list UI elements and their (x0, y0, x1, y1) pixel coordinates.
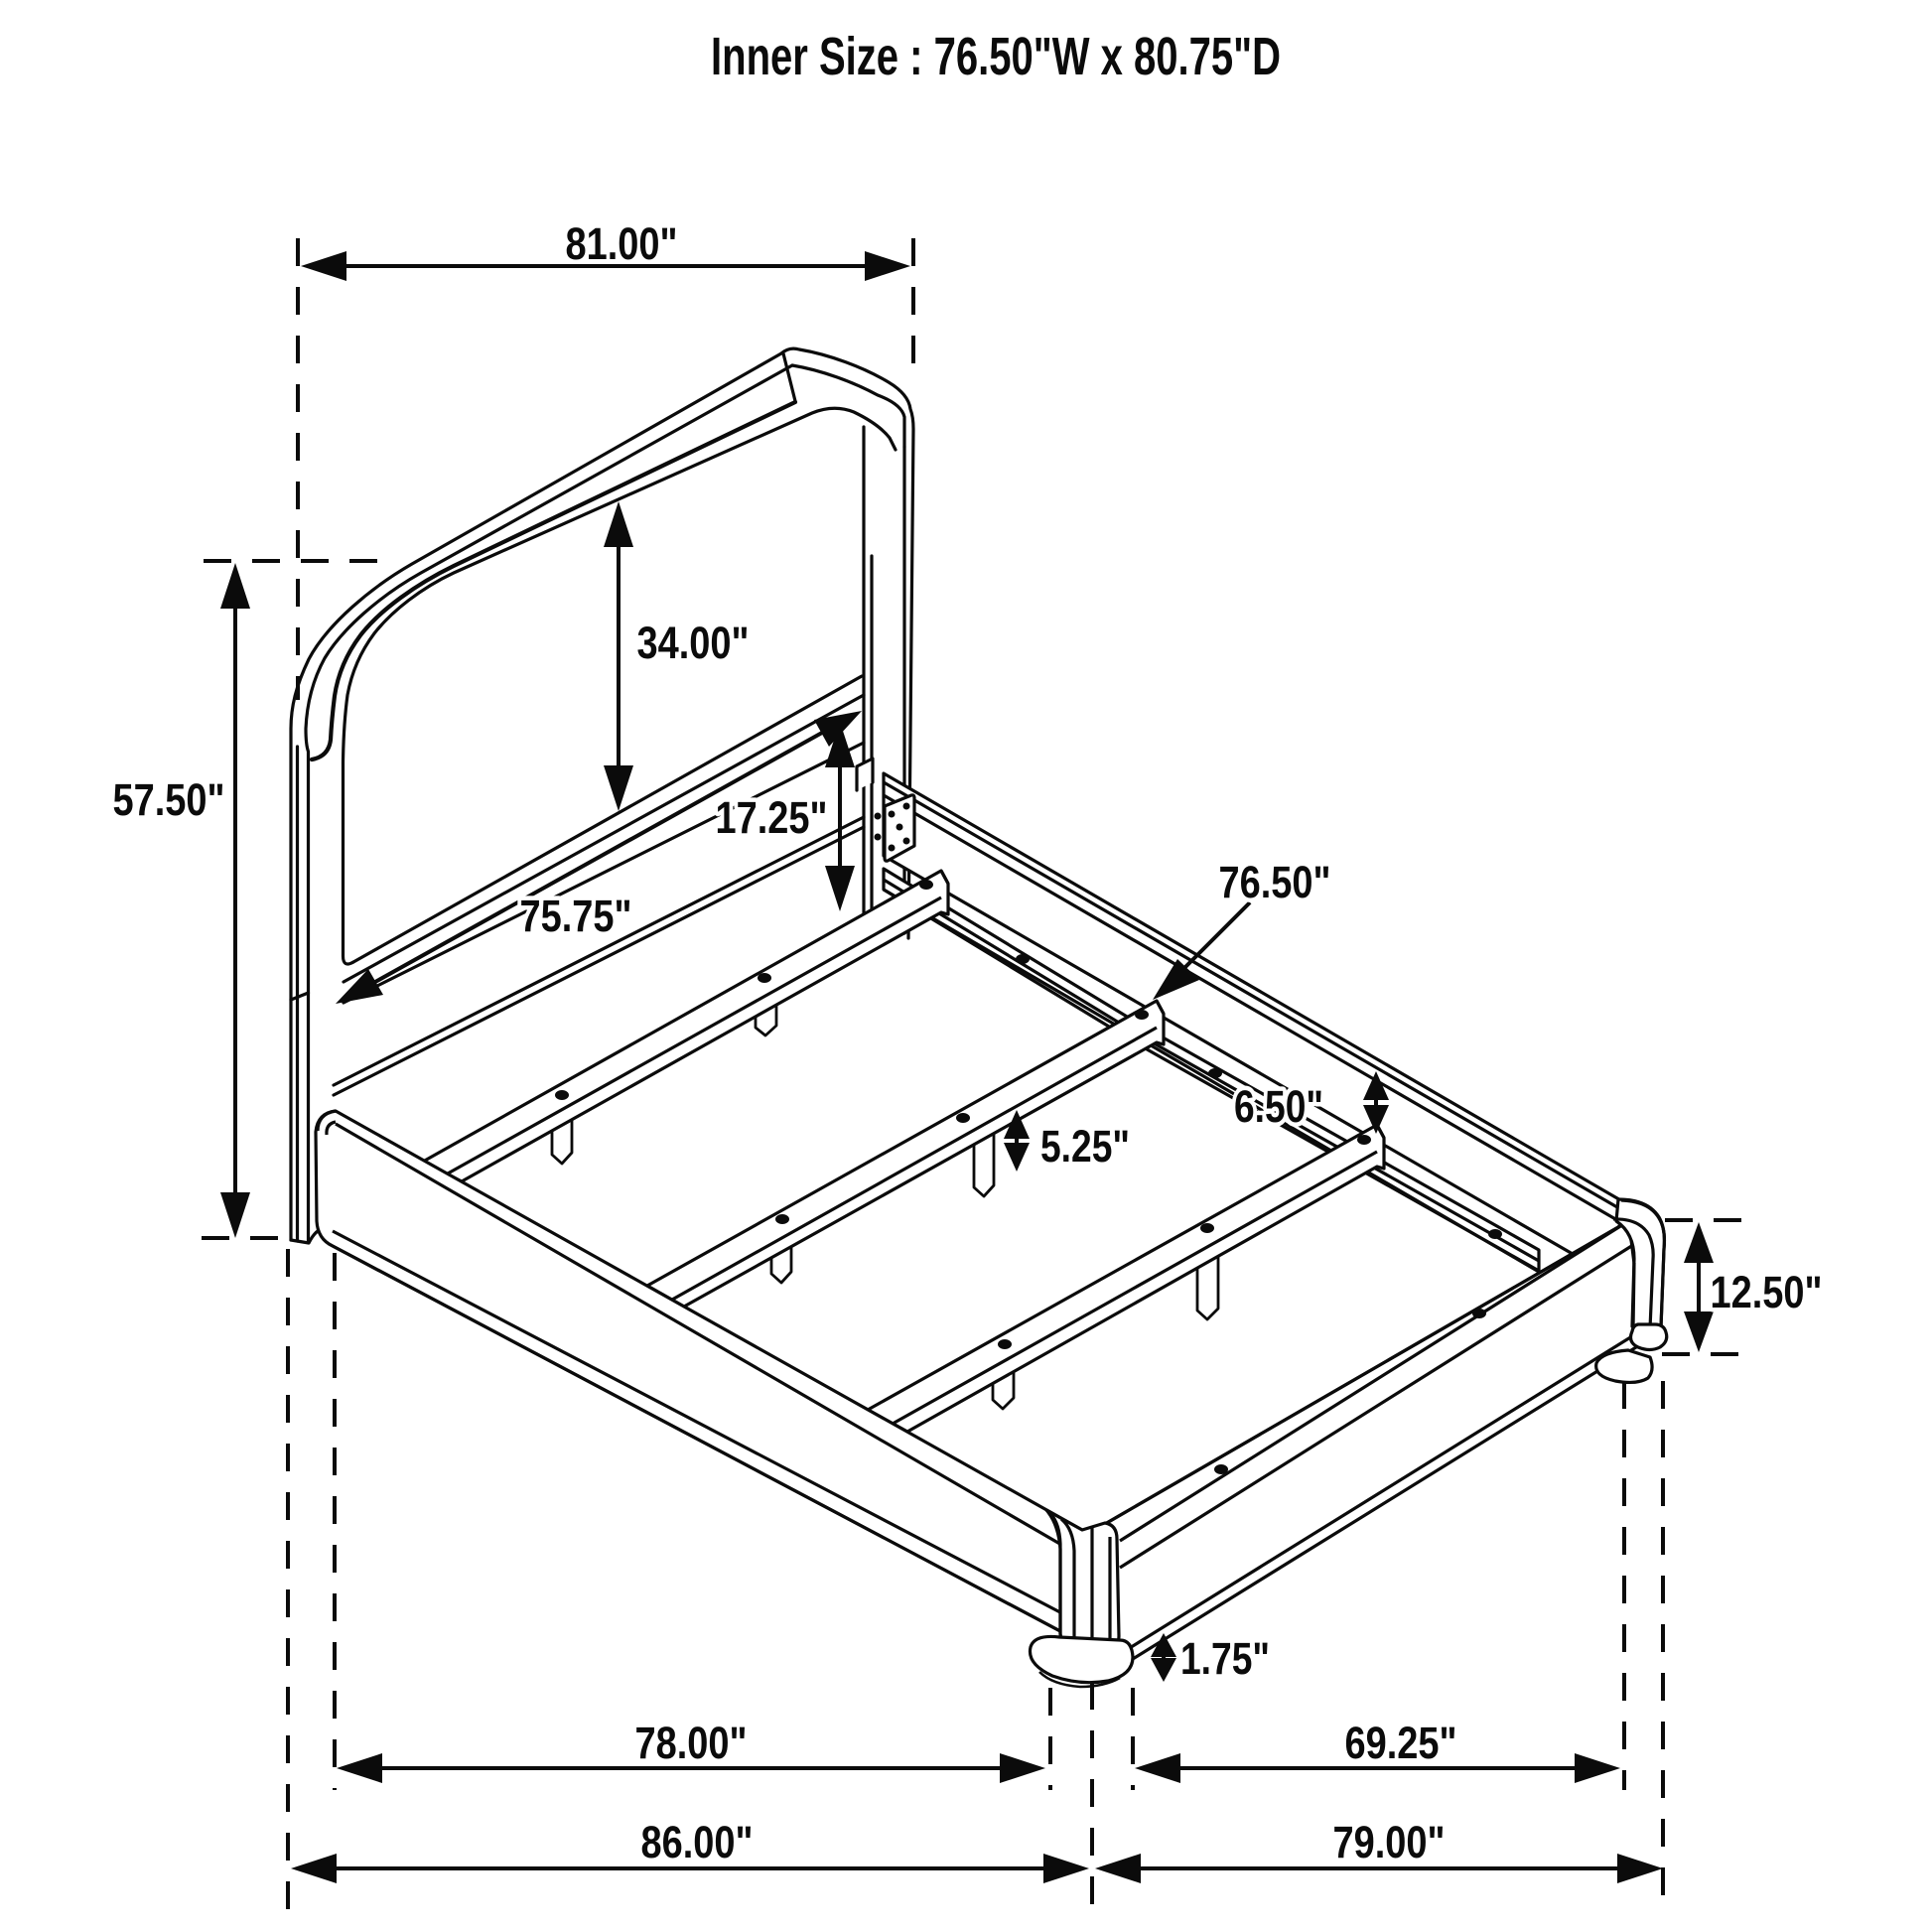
svg-text:57.50": 57.50" (113, 774, 225, 825)
svg-text:6.50": 6.50" (1234, 1081, 1323, 1132)
svg-text:69.25": 69.25" (1345, 1718, 1457, 1768)
svg-text:12.50": 12.50" (1711, 1267, 1823, 1317)
svg-text:1.75": 1.75" (1180, 1633, 1270, 1684)
svg-text:76.50": 76.50" (1219, 857, 1331, 907)
svg-text:86.00": 86.00" (641, 1817, 754, 1867)
svg-text:5.25": 5.25" (1040, 1121, 1130, 1172)
svg-text:79.00": 79.00" (1333, 1817, 1446, 1867)
svg-text:78.00": 78.00" (635, 1718, 748, 1768)
svg-text:75.75": 75.75" (520, 891, 632, 941)
svg-text:81.00": 81.00" (566, 218, 678, 269)
svg-text:Inner Size : 76.50"W x 80.75"D: Inner Size : 76.50"W x 80.75"D (711, 27, 1281, 86)
svg-text:34.00": 34.00" (637, 618, 750, 668)
svg-text:17.25": 17.25" (716, 792, 828, 843)
